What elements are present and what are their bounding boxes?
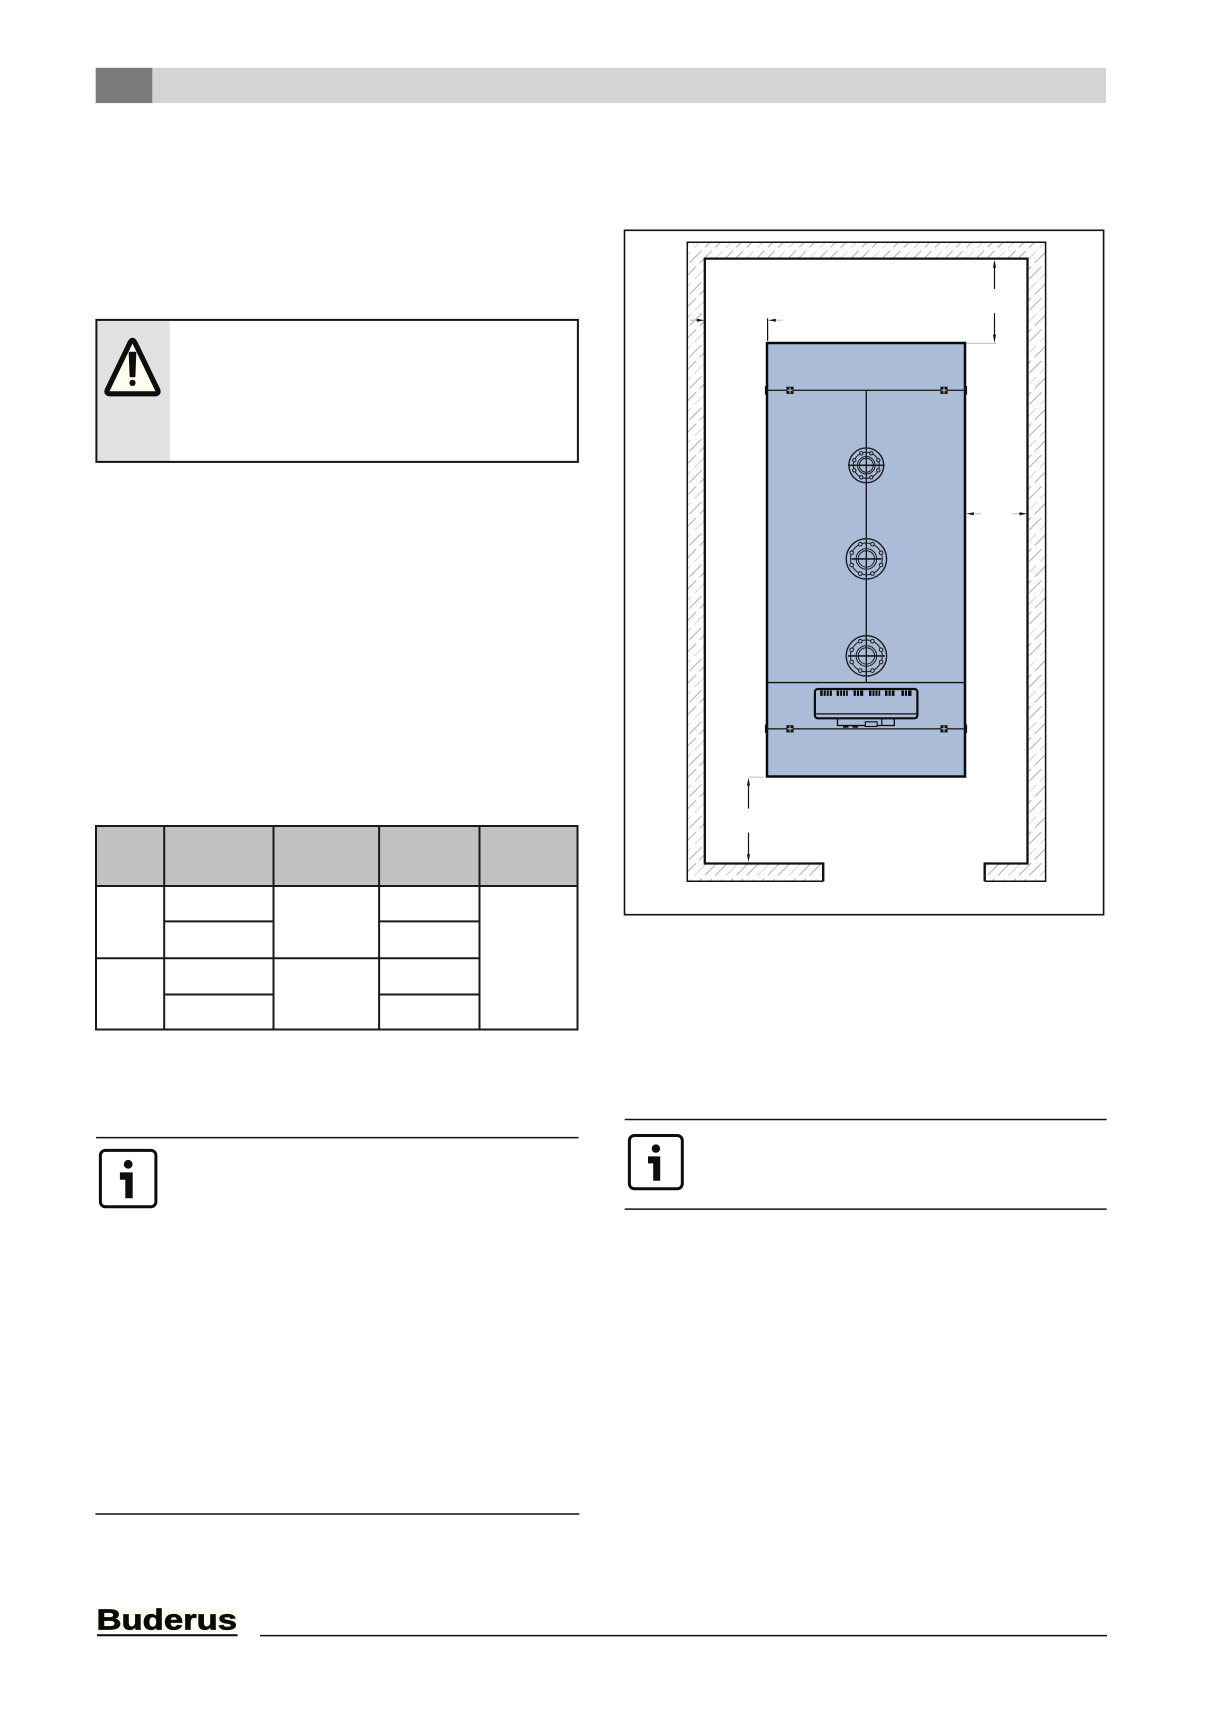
svg-text:Buderus: Buderus: [97, 1605, 238, 1637]
